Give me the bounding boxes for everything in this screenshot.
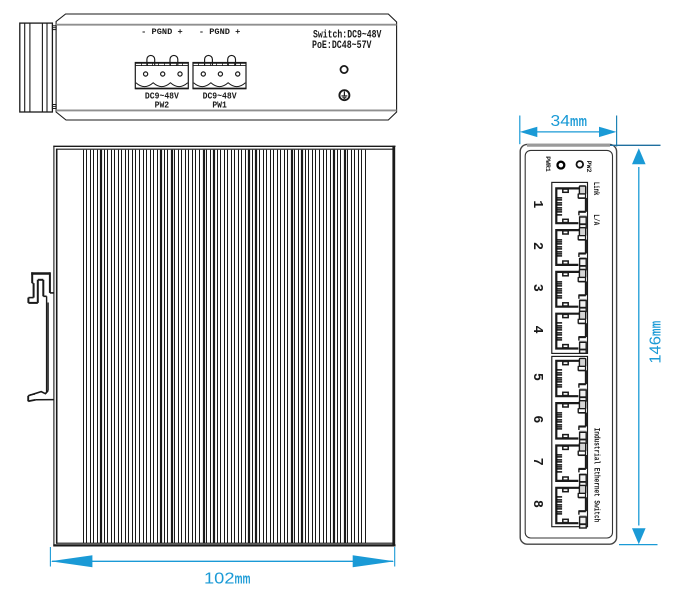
svg-text:- PGND +: - PGND +	[141, 27, 183, 37]
svg-text:- PGND +: - PGND +	[199, 27, 241, 37]
svg-text:Industrial Ethernet Switch: Industrial Ethernet Switch	[592, 428, 602, 523]
svg-text:L/A: L/A	[591, 214, 600, 225]
svg-text:7: 7	[529, 458, 544, 466]
svg-text:4: 4	[529, 326, 544, 334]
svg-text:PW2: PW2	[585, 161, 592, 173]
svg-text:146mm: 146mm	[647, 321, 664, 364]
svg-text:8: 8	[529, 500, 544, 508]
svg-text:Link: Link	[591, 182, 600, 196]
svg-text:PWR1: PWR1	[544, 156, 551, 172]
svg-text:3: 3	[529, 284, 544, 292]
svg-text:PoE:DC48~57V: PoE:DC48~57V	[312, 40, 372, 52]
svg-text:6: 6	[529, 415, 544, 423]
svg-text:102mm: 102mm	[204, 571, 251, 588]
svg-text:PW2: PW2	[155, 100, 170, 110]
svg-text:2: 2	[529, 242, 544, 250]
svg-text:5: 5	[529, 373, 544, 381]
svg-text:34mm: 34mm	[551, 113, 588, 130]
svg-text:1: 1	[529, 200, 544, 208]
svg-text:PW1: PW1	[212, 100, 227, 110]
